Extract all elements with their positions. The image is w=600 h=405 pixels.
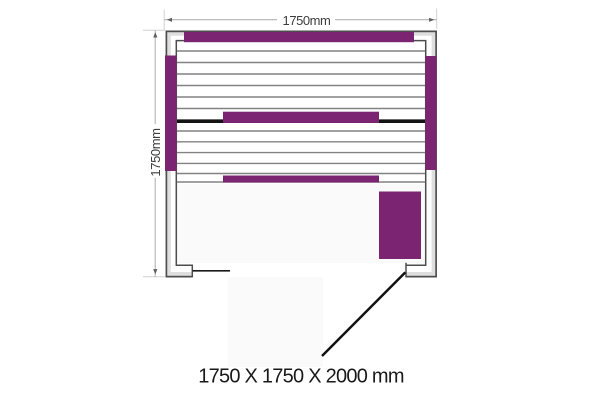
svg-text:1750 X 1750 X 2000 mm: 1750 X 1750 X 2000 mm <box>198 366 404 388</box>
svg-text:1750mm: 1750mm <box>148 128 163 176</box>
svg-text:1750mm: 1750mm <box>283 13 331 28</box>
